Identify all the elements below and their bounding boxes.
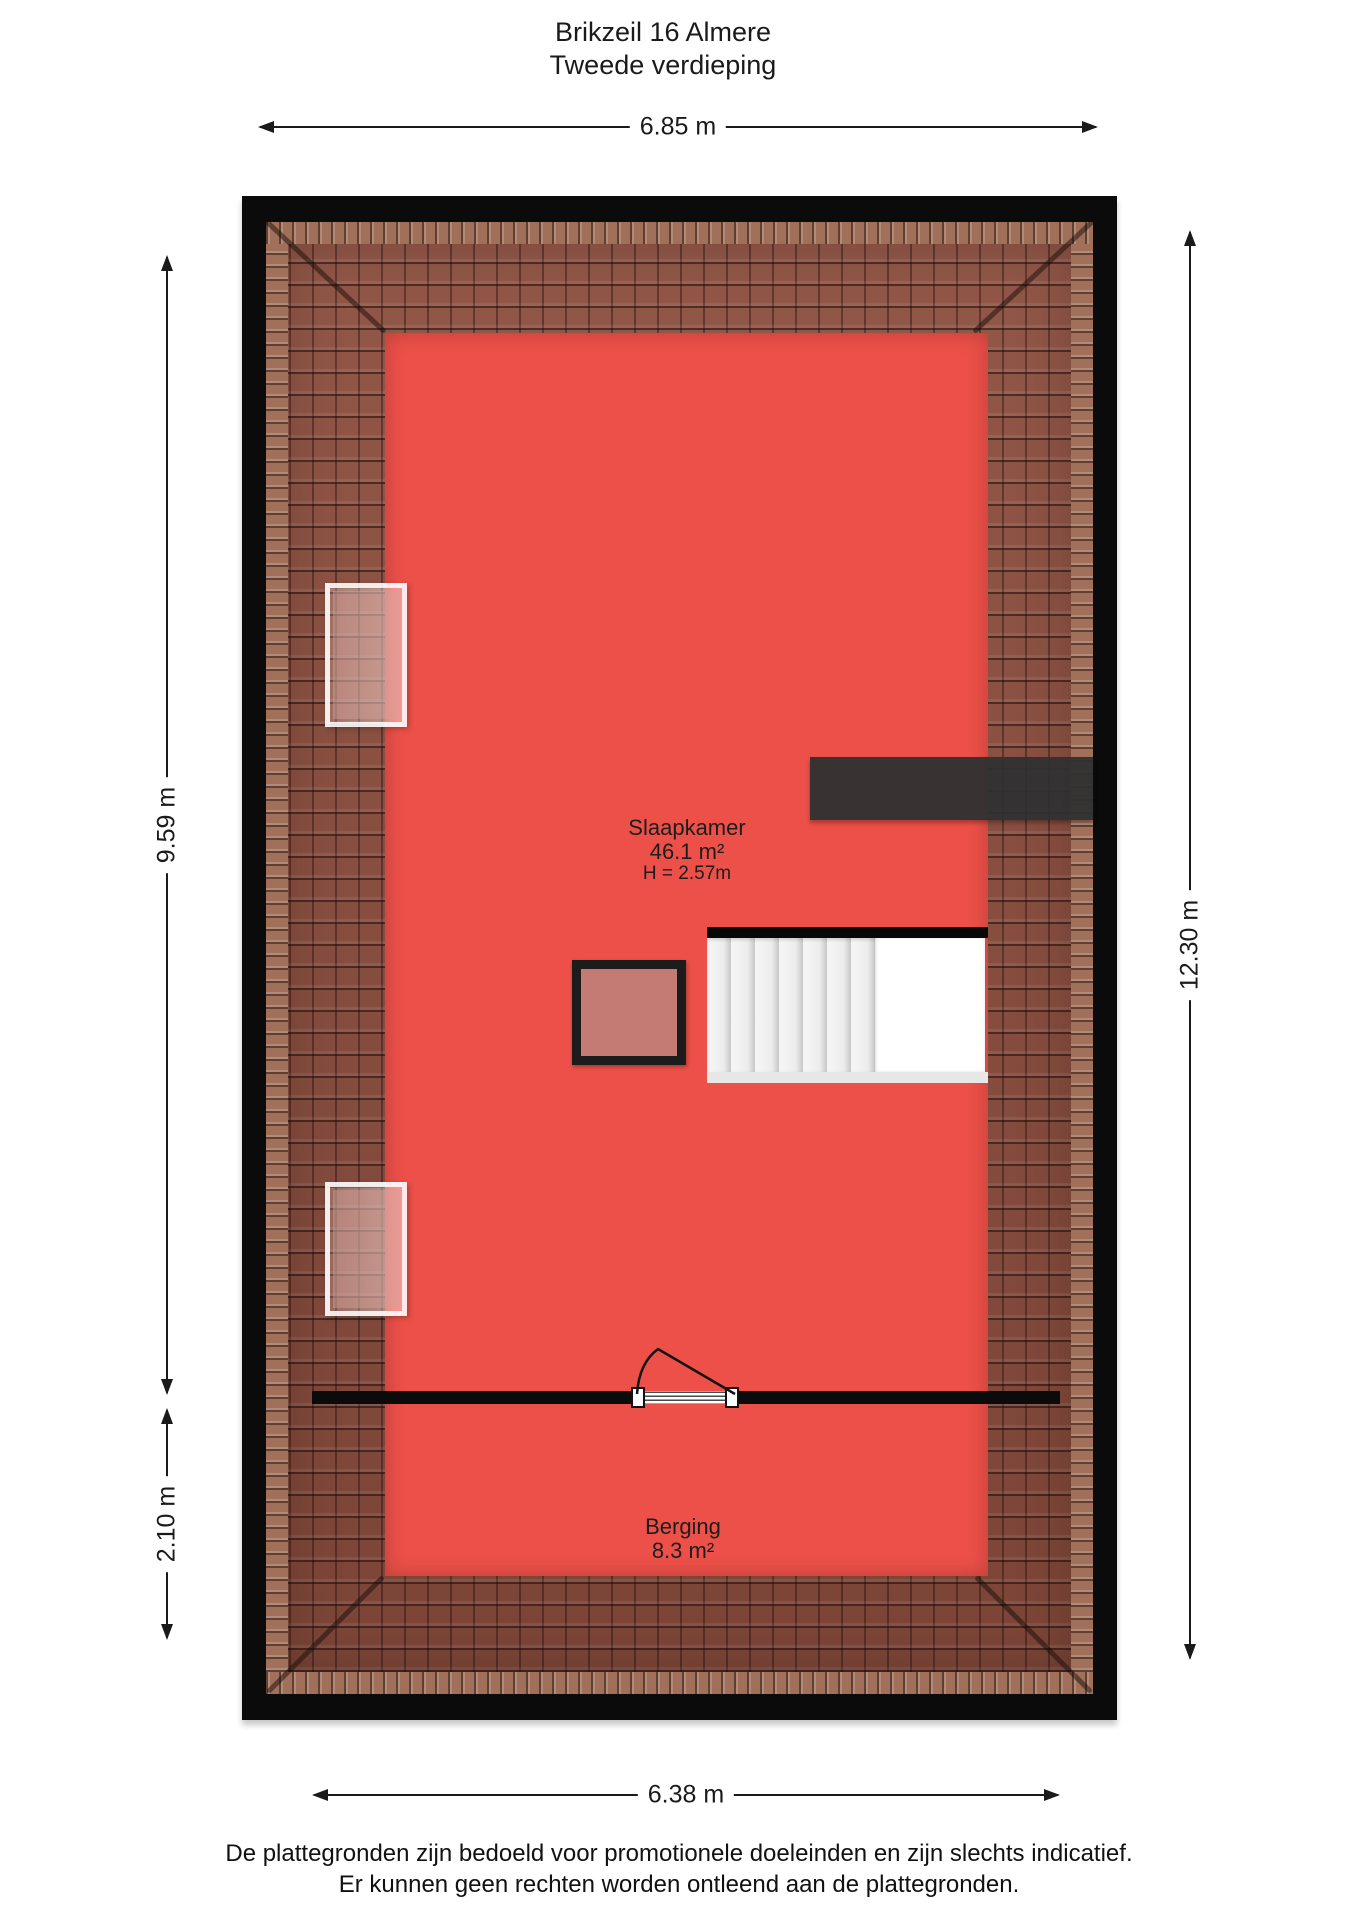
arrow-down-icon [1184, 1644, 1196, 1660]
dimension-left-upper-label: 9.59 m [152, 777, 183, 873]
dark-dormer-box [810, 757, 1093, 820]
roof-window-lower-pane [333, 1190, 399, 1308]
dimension-right: 12.30 m [1180, 230, 1200, 1660]
room-ceiling-height: H = 2.57m [537, 863, 837, 884]
dimension-left-lower-label: 2.10 m [152, 1476, 183, 1572]
staircase-wall [707, 927, 988, 938]
arrow-down-icon [161, 1624, 173, 1640]
roof-window-lower [325, 1182, 407, 1316]
room-area: 8.3 m² [533, 1539, 833, 1562]
roof-hatch [572, 960, 686, 1065]
roof-window-upper [325, 583, 407, 727]
arrow-up-icon [1184, 230, 1196, 246]
dimension-left-lower: 2.10 m [157, 1408, 177, 1640]
room-name: Slaapkamer [537, 815, 837, 840]
page-title: Brikzeil 16 Almere Tweede verdieping [0, 16, 1326, 82]
arrow-right-icon [1082, 121, 1098, 133]
title-address: Brikzeil 16 Almere [0, 16, 1326, 49]
disclaimer: De plattegronden zijn bedoeld voor promo… [0, 1838, 1358, 1900]
floorplan-page: Brikzeil 16 Almere Tweede verdieping 6.8… [0, 0, 1358, 1920]
dimension-bottom-label: 6.38 m [638, 1780, 734, 1811]
room-area: 46.1 m² [537, 840, 837, 863]
disclaimer-line-1: De plattegronden zijn bedoeld voor promo… [0, 1838, 1358, 1869]
dimension-bottom: 6.38 m [312, 1785, 1060, 1805]
stair-landing-edge [707, 1072, 988, 1083]
ridge-tiles-right [1071, 244, 1093, 1672]
room-label-berging: Berging 8.3 m² [533, 1514, 833, 1562]
arrow-down-icon [161, 1379, 173, 1395]
title-floor: Tweede verdieping [0, 49, 1326, 82]
outer-wall-frame [242, 196, 1117, 1720]
ridge-tiles-top [266, 222, 1093, 244]
arrow-left-icon [258, 121, 274, 133]
roof-window-upper-pane [333, 591, 399, 719]
arrow-up-icon [161, 255, 173, 271]
door-swing-arc [630, 1345, 740, 1396]
stair-well [876, 938, 985, 1072]
room-name: Berging [533, 1514, 833, 1539]
ridge-tiles-bottom [266, 1672, 1093, 1694]
ridge-tiles-left [266, 244, 288, 1672]
arrow-right-icon [1044, 1789, 1060, 1801]
room-label-slaapkamer: Slaapkamer 46.1 m² H = 2.57m [537, 815, 837, 884]
arrow-left-icon [312, 1789, 328, 1801]
arrow-up-icon [161, 1408, 173, 1424]
dimension-top-label: 6.85 m [630, 112, 726, 143]
dimension-top: 6.85 m [258, 117, 1098, 137]
stair-treads [707, 938, 876, 1072]
dimension-left-upper: 9.59 m [157, 255, 177, 1395]
disclaimer-line-2: Er kunnen geen rechten worden ontleend a… [0, 1869, 1358, 1900]
staircase [707, 927, 988, 1083]
dimension-right-label: 12.30 m [1175, 890, 1206, 1000]
